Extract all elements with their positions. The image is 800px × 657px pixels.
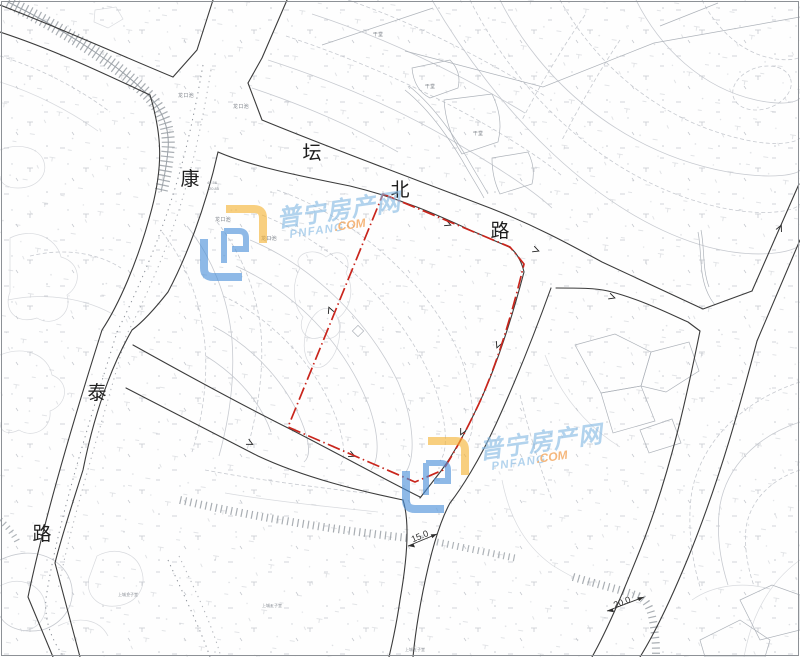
terrain-speckle-texture (0, 0, 800, 657)
spot-elevation: 20.85 (209, 186, 220, 191)
road-label-tai: 泰 (87, 382, 106, 404)
road-label-lu-left: 路 (32, 523, 51, 545)
village-label: 上城五子堂 (405, 646, 425, 652)
village-label: 上城五子堂 (118, 591, 138, 597)
field-label: 干堂 (473, 130, 484, 137)
survey-map-canvas: 15.0 20.0 康 泰 路 坛 北 路 龙口池 龙口池 龙口池 龙口池 干堂… (0, 0, 800, 657)
field-label: 干堂 (425, 83, 436, 90)
road-label-kang: 康 (180, 168, 199, 190)
pond-label: 龙口池 (178, 92, 194, 99)
road-label-tan: 坛 (302, 142, 321, 164)
field-label: 干堂 (373, 31, 384, 38)
spot-elevation: 42.56 (207, 180, 218, 185)
pond-label: 龙口池 (233, 103, 249, 110)
road-label-lu-top: 路 (490, 220, 509, 242)
pond-label: 龙口池 (215, 216, 231, 223)
village-label: 上城五子堂 (262, 602, 282, 608)
parcel-map-image: 15.0 20.0 康 泰 路 坛 北 路 龙口池 龙口池 龙口池 龙口池 干堂… (0, 0, 800, 657)
